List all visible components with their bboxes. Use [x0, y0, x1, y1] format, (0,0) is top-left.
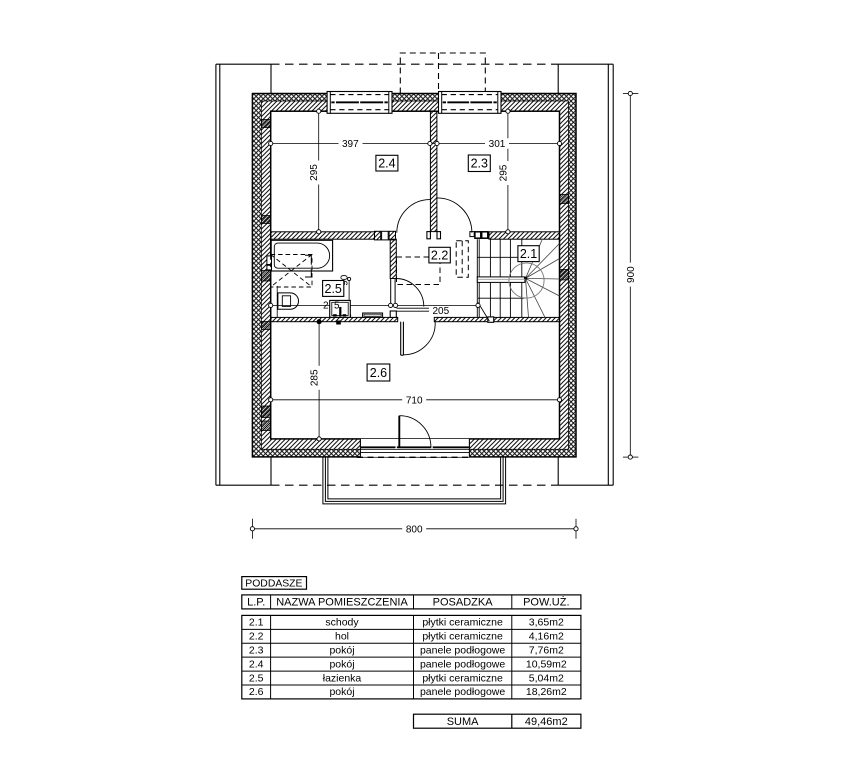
svg-text:pokój: pokój — [329, 644, 354, 656]
svg-text:PODDASZE: PODDASZE — [245, 578, 302, 589]
svg-text:900: 900 — [626, 266, 637, 283]
svg-text:4,16m2: 4,16m2 — [529, 631, 564, 643]
svg-text:POSADZKA: POSADZKA — [433, 597, 494, 609]
svg-text:10,59m2: 10,59m2 — [526, 658, 567, 670]
svg-text:295: 295 — [309, 164, 320, 181]
svg-text:2.1: 2.1 — [249, 617, 264, 629]
svg-text:POW.UŻ.: POW.UŻ. — [523, 596, 569, 609]
svg-text:2: 2 — [323, 301, 329, 312]
svg-text:295: 295 — [498, 164, 509, 181]
svg-text:285: 285 — [309, 369, 320, 386]
svg-text:2.3: 2.3 — [249, 644, 264, 656]
svg-text:L.P.: L.P. — [247, 597, 265, 609]
svg-text:5: 5 — [334, 301, 340, 312]
svg-text:2.2: 2.2 — [431, 249, 448, 263]
svg-text:hol: hol — [335, 631, 349, 643]
svg-text:2.3: 2.3 — [471, 157, 488, 171]
svg-text:301: 301 — [489, 139, 506, 150]
svg-text:płytki ceramiczne: płytki ceramiczne — [422, 672, 503, 684]
svg-text:łazienka: łazienka — [323, 672, 362, 684]
svg-text:płytki ceramiczne: płytki ceramiczne — [422, 617, 503, 629]
svg-text:2.4: 2.4 — [249, 658, 264, 670]
svg-text:49,46m2: 49,46m2 — [525, 716, 568, 728]
svg-text:205: 205 — [432, 306, 449, 317]
svg-text:2.2: 2.2 — [249, 631, 264, 643]
svg-text:3,65m2: 3,65m2 — [529, 617, 564, 629]
svg-text:2.4: 2.4 — [378, 157, 395, 171]
svg-text:panele podłogowe: panele podłogowe — [420, 658, 505, 670]
svg-text:schody: schody — [325, 617, 359, 629]
svg-text:2.5: 2.5 — [325, 282, 342, 296]
svg-text:800: 800 — [406, 525, 423, 536]
svg-text:7,76m2: 7,76m2 — [529, 644, 564, 656]
svg-text:panele podłogowe: panele podłogowe — [420, 644, 505, 656]
svg-text:pokój: pokój — [329, 658, 354, 670]
svg-text:18,26m2: 18,26m2 — [526, 686, 567, 698]
svg-text:SUMA: SUMA — [447, 716, 479, 728]
svg-text:397: 397 — [342, 139, 359, 150]
svg-text:2.1: 2.1 — [520, 247, 537, 261]
svg-text:710: 710 — [406, 396, 423, 407]
svg-text:2.6: 2.6 — [249, 686, 264, 698]
svg-text:2.5: 2.5 — [249, 672, 264, 684]
svg-text:NAZWA POMIESZCZENIA: NAZWA POMIESZCZENIA — [276, 597, 408, 609]
svg-text:pokój: pokój — [329, 686, 354, 698]
svg-text:panele podłogowe: panele podłogowe — [420, 686, 505, 698]
svg-text:płytki ceramiczne: płytki ceramiczne — [422, 631, 503, 643]
svg-text:5,04m2: 5,04m2 — [529, 672, 564, 684]
svg-text:2.6: 2.6 — [370, 366, 387, 380]
